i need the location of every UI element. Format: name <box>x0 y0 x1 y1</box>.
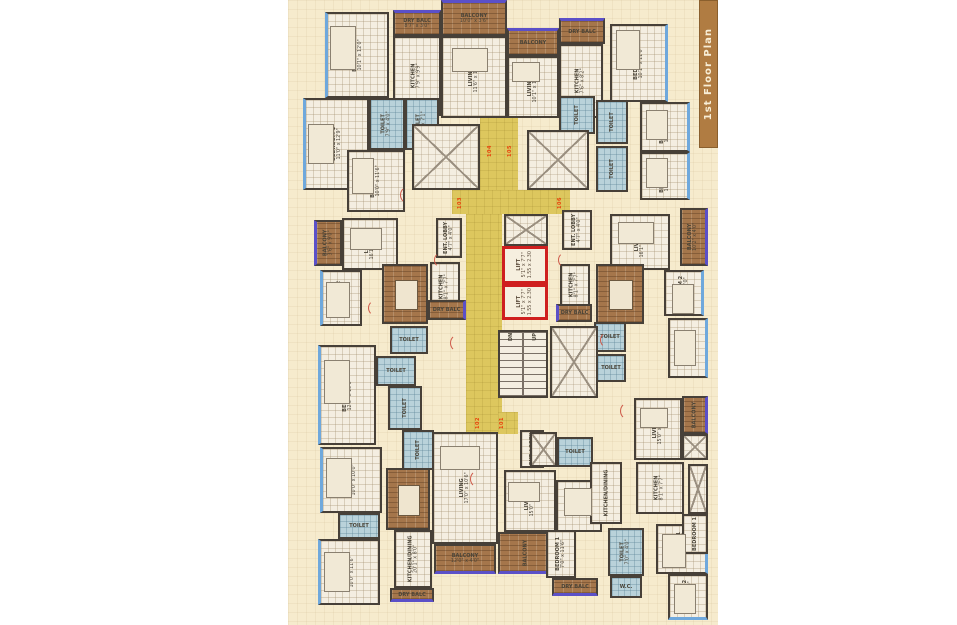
dining-room: DINING <box>386 468 430 530</box>
dry-balc-room: DRY BALC <box>390 588 434 602</box>
unit-number-104: 104 <box>482 138 498 164</box>
stair-dn-label: DN <box>504 331 518 343</box>
balcony-room: BALCONY3'6" x 9'0" <box>314 220 342 266</box>
toilet-room: TOILET <box>338 513 380 539</box>
door-arc <box>450 334 468 352</box>
bed <box>616 30 640 70</box>
door-arc <box>620 402 638 420</box>
lobby-shaft <box>527 130 589 190</box>
sofa <box>618 222 654 244</box>
toilet-room: TOILET7'0" x 4'0" <box>608 528 644 576</box>
stair-up-label: UP <box>528 331 542 343</box>
lift-2: LIFT5'1" x 7'7"1.55 x 2.30 <box>502 284 548 320</box>
dining-room: DINING8'0" x 8'0" <box>596 264 644 324</box>
balcony-room: BALCONY <box>507 28 559 56</box>
floor-plan-title-banner: 1st Floor Plan <box>699 0 718 148</box>
floor-plan-title: 1st Floor Plan <box>703 28 714 120</box>
dining-table <box>564 488 592 516</box>
stair-shaft <box>550 326 598 398</box>
kitchen-dining-room: KITCHEN/DINING20'1" x 8'0" <box>394 530 432 588</box>
corridor <box>466 214 502 432</box>
toilet-room: TOILET <box>376 356 416 386</box>
kitchen-room: KITCHEN8'1" x 7'7" <box>636 462 684 514</box>
bed <box>646 158 668 188</box>
unit-number-105: 105 <box>502 138 518 164</box>
balcony-room: BALCONY <box>682 396 708 434</box>
bed <box>308 124 334 164</box>
bed <box>326 458 352 498</box>
toilet-room: TOILET <box>557 437 593 467</box>
bed <box>672 284 694 314</box>
dry-balc-room: DRY BALC8'7" x 3'0" <box>393 10 441 36</box>
ent-lobby-room: ENT. LOBBY4'7" x 4'0" <box>562 210 592 250</box>
unit-number-102: 102 <box>470 410 486 436</box>
bed <box>326 282 350 318</box>
bed <box>646 110 668 140</box>
toilet-room: TOILET <box>596 354 626 382</box>
toilet-room: TOILET <box>596 100 628 144</box>
toilet-room: TOILET <box>596 146 628 192</box>
lobby-shaft <box>412 124 480 190</box>
bed <box>352 158 374 194</box>
balcony-room: BALCONY10'0" x 3'6" <box>441 0 507 36</box>
bedroom-1-room: BEDROOM 17'0" x 11'6" <box>546 530 576 578</box>
bed <box>662 534 686 568</box>
sofa <box>440 446 480 470</box>
dry-balc-room: DRY BALC <box>559 18 605 44</box>
balcony-room: BALCONY12'0" x 4'0" <box>434 544 496 574</box>
balcony-room: BALCONY <box>498 532 552 574</box>
balcony-room: BALCONY10'2" x 4'0" <box>680 208 708 266</box>
sofa <box>350 228 382 250</box>
toilet-room: TOILET <box>559 96 595 134</box>
lift-lobby-shaft <box>504 214 548 246</box>
dining-room: DINING8'0" x 8'0" <box>382 264 428 324</box>
w-c--room: W.C. <box>610 576 642 598</box>
toilet-room: TOILET <box>390 326 428 354</box>
sofa <box>452 48 488 72</box>
unit-number-101: 101 <box>494 410 510 436</box>
kitchen-room: KITCHEN8'1" x 7'7" <box>560 264 590 306</box>
kitchen-dining-room: KITCHEN/DINING <box>590 462 622 524</box>
door-arc <box>434 252 450 268</box>
bed <box>330 26 356 70</box>
bed <box>324 552 350 592</box>
dry-balc-room: DRY BALC <box>552 578 598 596</box>
floor-plan-canvas: 1st Floor Plan BEDROOM 210'1" x 12'0"DRY… <box>0 0 957 625</box>
toilet-room: TOILET <box>402 430 434 470</box>
duct-shaft <box>530 432 557 467</box>
lift-1: LIFT5'1" x 7'7"1.55 x 2.30 <box>502 246 548 284</box>
dry-balc-room: DRY BALC <box>556 304 592 322</box>
door-arc <box>368 300 384 316</box>
dry-balc-room: DRY BALC <box>428 300 466 320</box>
unit-number-103: 103 <box>452 190 468 216</box>
bed <box>674 330 696 366</box>
duct-shaft <box>688 464 708 514</box>
door-arc <box>558 252 574 268</box>
bed <box>674 584 696 614</box>
door-arc <box>400 186 418 204</box>
sofa <box>512 62 540 82</box>
door-arc <box>470 470 488 488</box>
duct-shaft <box>682 434 708 460</box>
bed <box>324 360 350 404</box>
unit-number-106: 106 <box>552 190 568 216</box>
sofa <box>640 408 668 428</box>
sofa <box>508 482 540 502</box>
toilet-room: TOILET7'9" x 4'0" <box>369 98 405 150</box>
door-arc <box>600 332 616 348</box>
toilet-room: TOILET <box>388 386 422 430</box>
